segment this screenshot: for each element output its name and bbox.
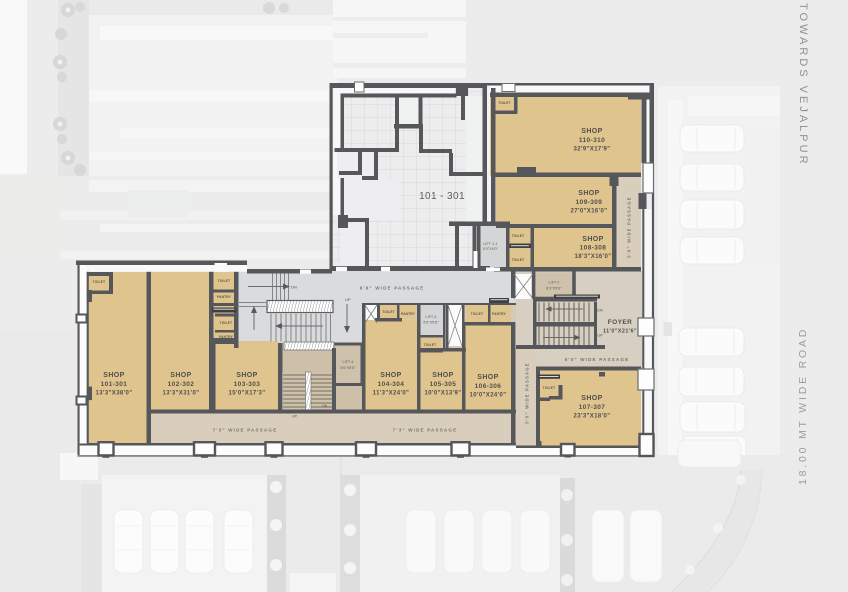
- svg-text:15'0"X17'3": 15'0"X17'3": [229, 391, 266, 397]
- svg-text:5'6"X5'8": 5'6"X5'8": [340, 366, 356, 370]
- svg-text:SHOP: SHOP: [380, 372, 401, 379]
- svg-text:13'3"X38'0": 13'3"X38'0": [96, 391, 133, 397]
- svg-text:TOILET: TOILET: [512, 234, 524, 238]
- svg-text:101-301: 101-301: [101, 381, 128, 388]
- svg-text:SHOP: SHOP: [582, 236, 603, 243]
- svg-text:DN: DN: [322, 404, 328, 408]
- svg-text:108-308: 108-308: [580, 245, 607, 252]
- svg-text:TOILET: TOILET: [93, 280, 105, 284]
- svg-text:7'3" WIDE PASSAGE: 7'3" WIDE PASSAGE: [393, 428, 458, 433]
- svg-text:SHOP: SHOP: [103, 372, 124, 379]
- svg-text:101 - 301: 101 - 301: [419, 191, 465, 202]
- svg-text:32'9"X17'9": 32'9"X17'9": [574, 147, 611, 153]
- svg-text:5'6"X5'8": 5'6"X5'8": [423, 321, 439, 325]
- svg-text:5'0" WIDE PASSAGE: 5'0" WIDE PASSAGE: [565, 357, 630, 362]
- svg-text:TOILET: TOILET: [498, 101, 510, 105]
- svg-text:104-304: 104-304: [378, 381, 405, 388]
- svg-text:23'3"X18'0": 23'3"X18'0": [574, 414, 611, 420]
- svg-text:SHOP: SHOP: [170, 372, 191, 379]
- svg-text:18.00 MT WIDE ROAD: 18.00 MT WIDE ROAD: [797, 327, 809, 485]
- svg-text:TOILET: TOILET: [218, 279, 230, 283]
- svg-text:LIFT-4: LIFT-4: [343, 360, 354, 364]
- svg-text:TOILET: TOILET: [543, 386, 555, 390]
- svg-text:107-307: 107-307: [579, 404, 606, 411]
- svg-text:TOILET: TOILET: [471, 312, 483, 316]
- svg-text:TOILET: TOILET: [382, 310, 394, 314]
- svg-text:106-306: 106-306: [475, 383, 502, 390]
- svg-text:7'3" WIDE PASSAGE: 7'3" WIDE PASSAGE: [213, 428, 278, 433]
- svg-text:FOYER: FOYER: [608, 319, 632, 326]
- svg-text:TOILET: TOILET: [424, 343, 436, 347]
- svg-text:18'3"X16'0": 18'3"X16'0": [575, 254, 612, 260]
- svg-text:PANTRY: PANTRY: [217, 295, 232, 299]
- svg-text:109-309: 109-309: [576, 199, 603, 206]
- svg-text:SHOP: SHOP: [477, 374, 498, 381]
- svg-text:103-303: 103-303: [234, 381, 261, 388]
- svg-text:10'0"X13'9": 10'0"X13'9": [425, 391, 462, 397]
- svg-text:27'0"X16'0": 27'0"X16'0": [571, 209, 608, 215]
- svg-text:105-305: 105-305: [430, 381, 457, 388]
- svg-text:5'6" WIDE PASSAGE: 5'6" WIDE PASSAGE: [627, 196, 632, 257]
- svg-text:SHOP: SHOP: [581, 128, 602, 135]
- svg-text:11'0"X21'6": 11'0"X21'6": [603, 329, 637, 335]
- svg-text:11'3"X24'0": 11'3"X24'0": [373, 391, 410, 397]
- svg-text:SHOP: SHOP: [578, 190, 599, 197]
- svg-text:TOILET: TOILET: [220, 321, 232, 325]
- svg-text:UP: UP: [292, 415, 298, 419]
- svg-text:10'0"X24'0": 10'0"X24'0": [470, 393, 507, 399]
- svg-text:PANTRY: PANTRY: [219, 335, 234, 339]
- svg-text:UP: UP: [345, 297, 351, 302]
- svg-text:SHOP: SHOP: [432, 372, 453, 379]
- svg-text:TOWARDS VEJALPUR: TOWARDS VEJALPUR: [797, 3, 809, 167]
- svg-text:PANTRY: PANTRY: [401, 312, 416, 316]
- svg-text:5'0"X5'0": 5'0"X5'0": [483, 247, 499, 251]
- svg-text:LIFT-3: LIFT-3: [426, 315, 437, 319]
- svg-text:PANTRY: PANTRY: [492, 312, 507, 316]
- svg-text:5'0" WIDE PASSAGE: 5'0" WIDE PASSAGE: [525, 362, 530, 423]
- svg-text:TOILET: TOILET: [512, 258, 524, 262]
- svg-text:SHOP: SHOP: [236, 372, 257, 379]
- svg-text:DN: DN: [291, 285, 297, 290]
- svg-text:110-310: 110-310: [579, 137, 605, 144]
- svg-text:LIFT-2: LIFT-2: [549, 281, 560, 285]
- svg-text:SHOP: SHOP: [581, 395, 602, 402]
- svg-text:13'3"X31'0": 13'3"X31'0": [163, 391, 200, 397]
- svg-text:DN: DN: [597, 308, 603, 313]
- svg-text:8'3"X5'6": 8'3"X5'6": [546, 287, 562, 291]
- svg-text:LIFT 1-1: LIFT 1-1: [483, 242, 497, 246]
- svg-text:102-302: 102-302: [168, 381, 195, 388]
- svg-text:6'6" WIDE PASSAGE: 6'6" WIDE PASSAGE: [360, 286, 425, 291]
